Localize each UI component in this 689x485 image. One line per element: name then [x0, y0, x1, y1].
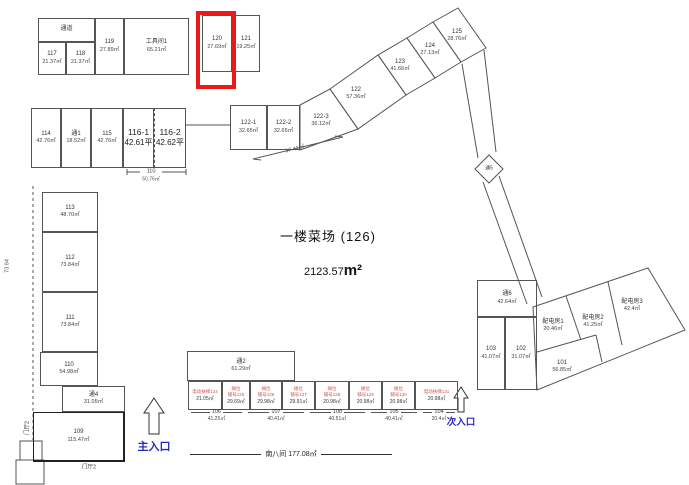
room-number: 117: [47, 51, 57, 59]
room-number: 116-2: [159, 127, 180, 138]
dim-area: 40.41㎡: [267, 415, 285, 422]
room-103: 103 41.07㎡: [477, 317, 505, 390]
room-number: 119: [105, 39, 115, 47]
room-102: 102 31.07㎡: [505, 317, 537, 390]
total-area-value: 2123.57: [304, 266, 344, 278]
room-passage-4: 通4 31.05㎡: [62, 386, 125, 412]
room-number: 109: [73, 429, 83, 437]
dim-110-number: 110: [147, 168, 156, 175]
stall-dim-108: 10840.51㎡: [307, 409, 368, 422]
stall-number: 铺号127: [290, 392, 307, 398]
stall-label: 电动扶梯131: [424, 389, 450, 395]
room-area: 31.05㎡: [84, 399, 103, 406]
room-122-3-label: 122-3 36.12㎡: [311, 113, 330, 129]
room-number: 通6: [502, 291, 511, 299]
stall-area: 20.98㎡: [323, 399, 341, 405]
room-area: 42.76㎡: [97, 138, 116, 145]
stall-number: 铺号130: [390, 392, 407, 398]
room-118: 118 21.37㎡: [66, 42, 95, 75]
dim-line: [423, 412, 432, 413]
room-tool1: 工具间1 65.21㎡: [124, 18, 189, 75]
dim-line: [283, 412, 304, 413]
room-area: 115.47㎡: [68, 437, 90, 444]
room-122-label: 122 57.36㎡: [346, 86, 365, 102]
dim-line: [190, 454, 261, 455]
room-area: 42.61平: [124, 138, 152, 148]
stall-电动扶梯124: 电动扶梯12421.05㎡: [188, 381, 222, 410]
divider-line: [566, 296, 581, 340]
room-number: 121: [241, 36, 251, 44]
corridor-line: [484, 50, 496, 152]
stall-number: 铺号125: [228, 392, 245, 398]
room-114: 114 42.76㎡: [31, 108, 61, 168]
dim-7384: 73.84: [4, 259, 11, 273]
room-pd1-label: 配电房1 20.46㎡: [542, 318, 563, 334]
divider-line: [537, 335, 596, 352]
room-area: 19.25㎡: [236, 44, 255, 51]
room-pd3-label: 配电房3 42.4㎡: [621, 298, 642, 314]
room-area: 32.65㎡: [274, 128, 293, 135]
passage-5-label: 通5: [485, 166, 493, 173]
room-113: 113 48.70㎡: [42, 192, 98, 232]
floor-plan: 通道 117 21.37㎡ 118 21.37㎡ 119 27.89㎡ 工具间1…: [0, 0, 689, 485]
room-122-1: 122-1 32.65㎡: [230, 105, 267, 150]
room-119: 119 27.89㎡: [95, 18, 124, 75]
room-number: 103: [486, 346, 496, 354]
dim-area: 20.4㎡: [432, 415, 447, 422]
dim-line: [401, 412, 417, 413]
dim-line: [248, 412, 269, 413]
room-area: 32.65㎡: [239, 128, 258, 135]
room-116-1: 116-1 42.61平: [123, 108, 154, 168]
room-121: 121 19.25㎡: [232, 15, 260, 72]
room-area: 21.37㎡: [42, 59, 61, 66]
room-area: 41.07㎡: [481, 354, 500, 361]
room-corridor-top: 通道: [38, 18, 95, 42]
room-112: 112 73.84㎡: [42, 232, 98, 292]
stall-铺号126: 摊位铺号12629.98㎡: [250, 381, 282, 410]
room-area: 61.29㎡: [231, 366, 250, 373]
dim-area: 40.51㎡: [329, 415, 347, 422]
room-122-2: 122-2 32.65㎡: [267, 105, 300, 150]
dim-line: [321, 454, 392, 455]
room-number: 通道: [60, 26, 72, 34]
stall-铺号128: 摊位铺号12820.98㎡: [315, 381, 349, 410]
room-124-label: 124 27.13㎡: [420, 42, 439, 58]
divider-line: [596, 335, 602, 362]
room-area: 21.37㎡: [71, 59, 90, 66]
stall-铺号125: 摊位铺号12529.69㎡: [222, 381, 250, 410]
room-area: 65.21㎡: [147, 47, 166, 54]
room-number: 102: [516, 346, 526, 354]
divider-line: [608, 282, 622, 345]
room-area: 73.84㎡: [60, 322, 79, 329]
room-115: 115 42.76㎡: [91, 108, 123, 168]
stall-铺号130: 摊位铺号13020.98㎡: [382, 381, 415, 410]
stall-number: 铺号129: [357, 392, 374, 398]
south-dim-label: 南八间 177.08㎡: [265, 449, 316, 459]
stall-dim-104: 10420.4㎡: [420, 409, 458, 422]
total-area-unit: m²: [344, 262, 362, 279]
room-number: 工具间1: [146, 39, 167, 47]
room-117: 117 21.37㎡: [38, 42, 66, 75]
room-passage-2: 通2 61.29㎡: [187, 351, 295, 381]
room-area: 42.62平: [156, 138, 184, 148]
room-area: 31.07㎡: [511, 354, 530, 361]
dim-line: [446, 412, 455, 413]
corridor-line: [462, 64, 478, 158]
room-area: 42.76㎡: [36, 138, 55, 145]
stall-number: 铺号128: [324, 392, 341, 398]
label-menting2-vertical: 门厅2: [24, 421, 31, 435]
stall-area: 21.05㎡: [196, 396, 214, 402]
dim-area: 40.41㎡: [385, 415, 403, 422]
stall-area: 29.98㎡: [257, 399, 275, 405]
dim-area: 41.25㎡: [208, 415, 226, 422]
plan-title: 一楼菜场 (126): [280, 228, 376, 246]
room-area: 73.84㎡: [60, 262, 79, 269]
room-area: 48.70㎡: [60, 212, 79, 219]
stall-area: 20.98㎡: [390, 399, 408, 405]
room-116-2: 116-2 42.62平: [154, 108, 186, 168]
dim-line: [223, 412, 242, 413]
room-number: 122-1: [241, 120, 256, 128]
plan-total-area: 2123.57m²: [304, 261, 362, 281]
stall-label: 电动扶梯124: [192, 389, 218, 395]
room-number: 118: [76, 51, 86, 59]
room-pd2-label: 配电房2 41.25㎡: [582, 314, 603, 330]
room-area: 18.52㎡: [66, 138, 85, 145]
corner-structure: [16, 460, 44, 484]
stall-dim-105: 10540.41㎡: [368, 409, 420, 422]
stall-电动扶梯131: 电动扶梯13120.98㎡: [415, 381, 458, 410]
room-101-label: 101 56.85㎡: [552, 359, 571, 375]
room-123-label: 123 41.66㎡: [390, 58, 409, 74]
dim-line: [310, 412, 331, 413]
room-passage-1: 通1 18.52㎡: [61, 108, 91, 168]
stall-number: 铺号126: [258, 392, 275, 398]
main-entrance-arrow-icon: [144, 398, 164, 434]
room-125-label: 125 28.76㎡: [447, 28, 466, 44]
stall-铺号129: 摊位铺号12920.98㎡: [349, 381, 382, 410]
stall-dim-107: 10740.41㎡: [245, 409, 307, 422]
highlight-box: [196, 11, 236, 89]
room-passage-6: 通6 42.64㎡: [477, 280, 537, 317]
room-area: 27.89㎡: [100, 47, 119, 54]
dim-arrow: [253, 159, 261, 160]
label-menting2-bottom: 门厅2: [82, 464, 96, 471]
room-number: 122-2: [276, 120, 291, 128]
stall-area: 20.98㎡: [428, 396, 446, 402]
stall-area: 20.98㎡: [357, 399, 375, 405]
room-area: 54.98㎡: [59, 369, 78, 376]
south-dimension: 南八间 177.08㎡: [190, 449, 392, 459]
dim-line: [371, 412, 387, 413]
room-area: 42.64㎡: [497, 299, 516, 306]
stall-area: 29.69㎡: [227, 399, 245, 405]
stall-dim-106: 10641.25㎡: [188, 409, 245, 422]
room-111: 111 73.84㎡: [42, 292, 98, 352]
stall-area: 29.91㎡: [290, 399, 308, 405]
room-110: 110 54.98㎡: [40, 352, 98, 386]
room-number: 116-1: [128, 127, 149, 138]
dim-110-area: 50.76㎡: [142, 177, 160, 184]
dim-line: [191, 412, 210, 413]
stall-铺号127: 摊位铺号12729.91㎡: [282, 381, 315, 410]
corridor-line: [499, 176, 542, 297]
room-109: 109 115.47㎡: [33, 412, 125, 462]
main-entrance-label: 主入口: [138, 438, 171, 454]
dim-line: [344, 412, 365, 413]
